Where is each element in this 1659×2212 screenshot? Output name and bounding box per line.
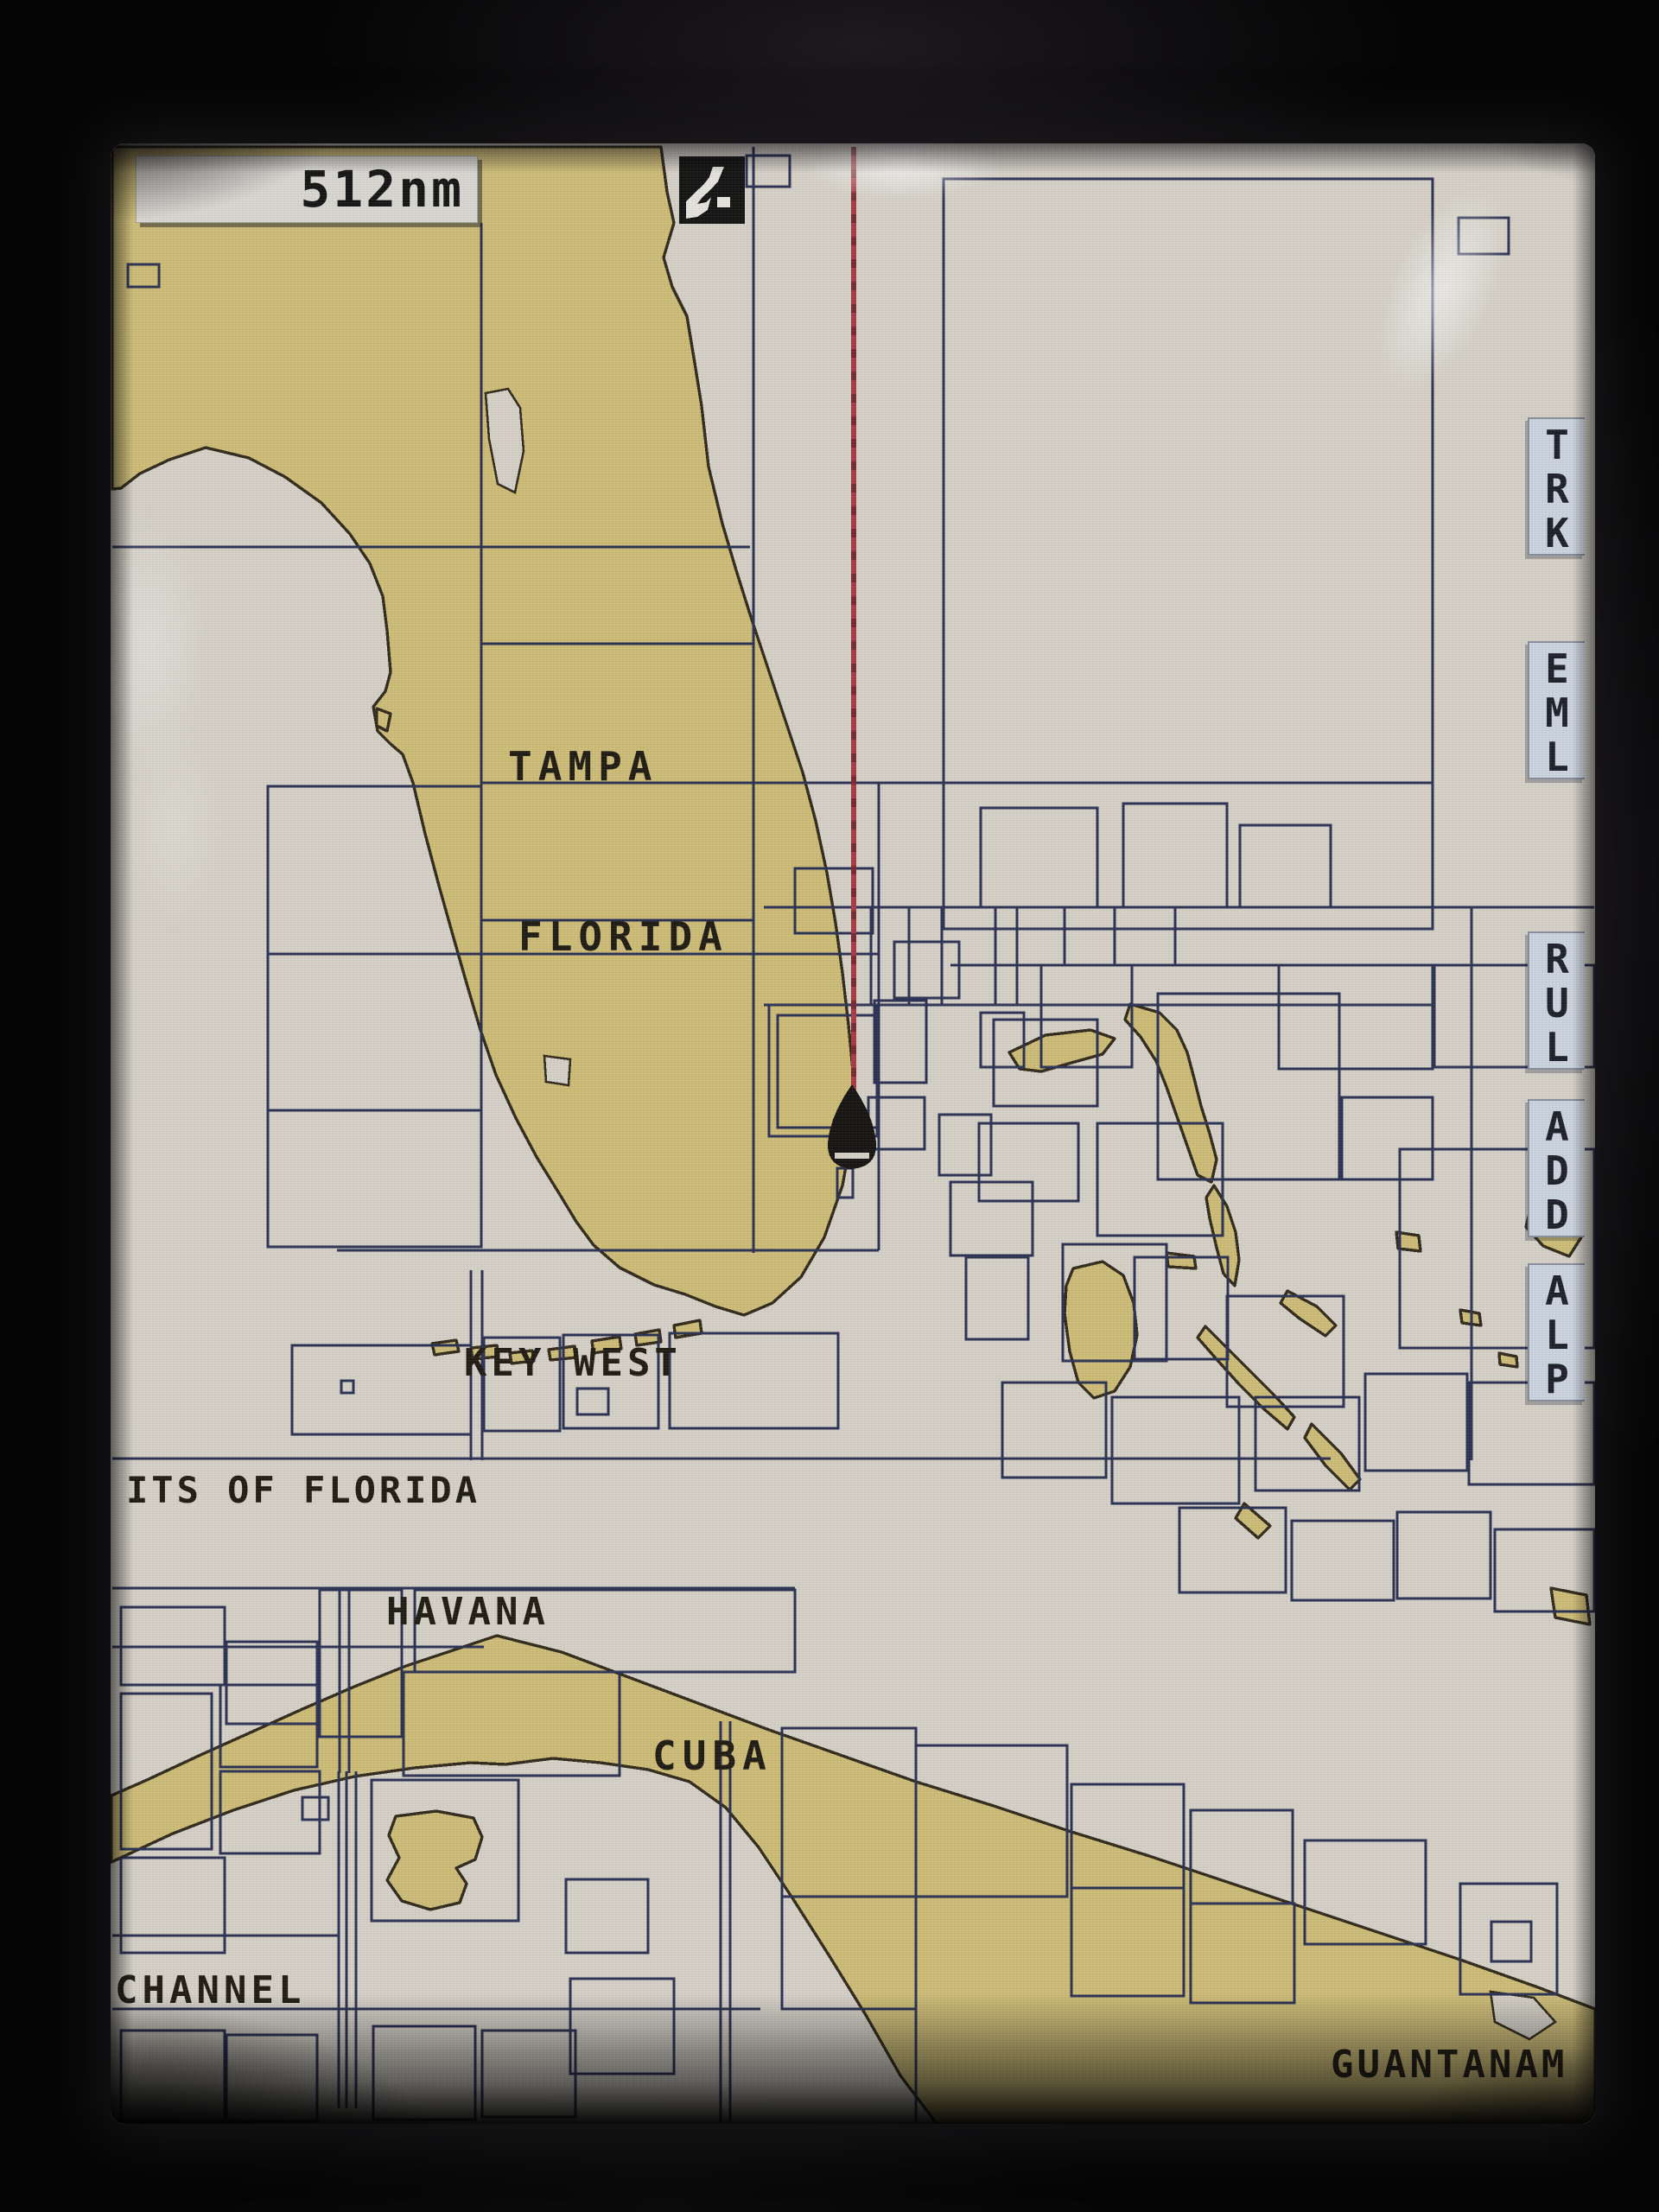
chart-map: TAMPAFLORIDAKEY WESTITS OF FLORIDAHAVANA… [111, 143, 1595, 2124]
landmass-new-providence [1166, 1253, 1196, 1268]
scale-value: 512nm [300, 160, 464, 219]
north-up-chart-icon [679, 156, 745, 224]
softkey-trk[interactable]: T R K [1528, 417, 1585, 556]
landmass-island-right-low [1551, 1588, 1590, 1624]
map-label-cuba: CUBA [652, 1732, 772, 1779]
map-label-florida: FLORIDA [518, 913, 728, 960]
vessel-stern-mark [835, 1153, 869, 1159]
scale-indicator: 512nm [136, 156, 478, 223]
landmass-cay-2 [1499, 1353, 1517, 1367]
landmass-key-1 [432, 1340, 459, 1355]
softkey-alp[interactable]: A L P [1528, 1263, 1585, 1402]
map-label-straits-of-florida: ITS OF FLORIDA [126, 1469, 480, 1511]
map-label-key-west: KEY WEST [464, 1341, 682, 1385]
landmass-tampa-bay-island [377, 709, 391, 731]
map-label-tampa: TAMPA [508, 743, 658, 790]
softkey-rul[interactable]: R U L [1528, 931, 1585, 1070]
map-label-channel: CHANNEL [115, 1968, 305, 2012]
map-label-havana: HAVANA [386, 1590, 550, 1634]
softkey-add[interactable]: A D D [1528, 1099, 1585, 1237]
chartplotter-screen: TAMPAFLORIDAKEY WESTITS OF FLORIDAHAVANA… [111, 143, 1595, 2124]
map-label-guantanamo: GUANTANAM [1331, 2043, 1567, 2087]
softkey-eml[interactable]: E M L [1528, 641, 1585, 779]
water-feature-lake-okeechobee [544, 1056, 570, 1085]
